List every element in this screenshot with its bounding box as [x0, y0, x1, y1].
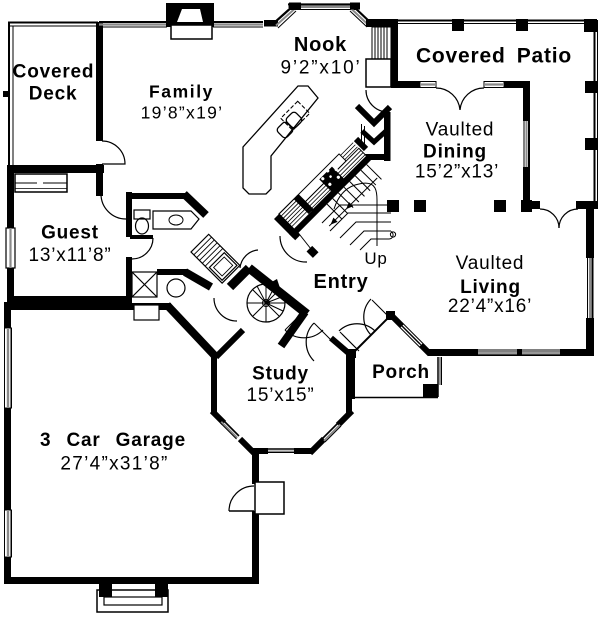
svg-text:Covered: Covered — [13, 62, 95, 83]
svg-text:Vaulted: Vaulted — [426, 120, 495, 141]
svg-text:Study: Study — [252, 364, 309, 385]
svg-text:Dining: Dining — [423, 142, 487, 163]
svg-text:Nook: Nook — [294, 34, 347, 56]
svg-text:19’8”x19’: 19’8”x19’ — [141, 103, 224, 123]
svg-text:Family: Family — [149, 82, 214, 102]
svg-text:13’x11’8”: 13’x11’8” — [29, 245, 112, 266]
svg-text:27’4”x31’8”: 27’4”x31’8” — [60, 454, 168, 475]
svg-text:Entry: Entry — [313, 271, 368, 293]
svg-text:Vaulted: Vaulted — [456, 253, 525, 274]
svg-text:22’4”x16’: 22’4”x16’ — [448, 296, 532, 317]
svg-text:Up: Up — [364, 249, 387, 268]
svg-text:Living: Living — [460, 277, 521, 298]
svg-text:15’x15”: 15’x15” — [247, 385, 315, 406]
svg-text:Porch: Porch — [372, 362, 430, 383]
svg-text:Deck: Deck — [29, 84, 78, 105]
svg-text:Covered Patio: Covered Patio — [416, 45, 572, 68]
svg-text:9’2”x10’: 9’2”x10’ — [281, 58, 362, 79]
svg-text:15’2”x13’: 15’2”x13’ — [415, 162, 499, 183]
svg-text:3 Car Garage: 3 Car Garage — [40, 430, 186, 451]
svg-text:Guest: Guest — [41, 223, 99, 244]
